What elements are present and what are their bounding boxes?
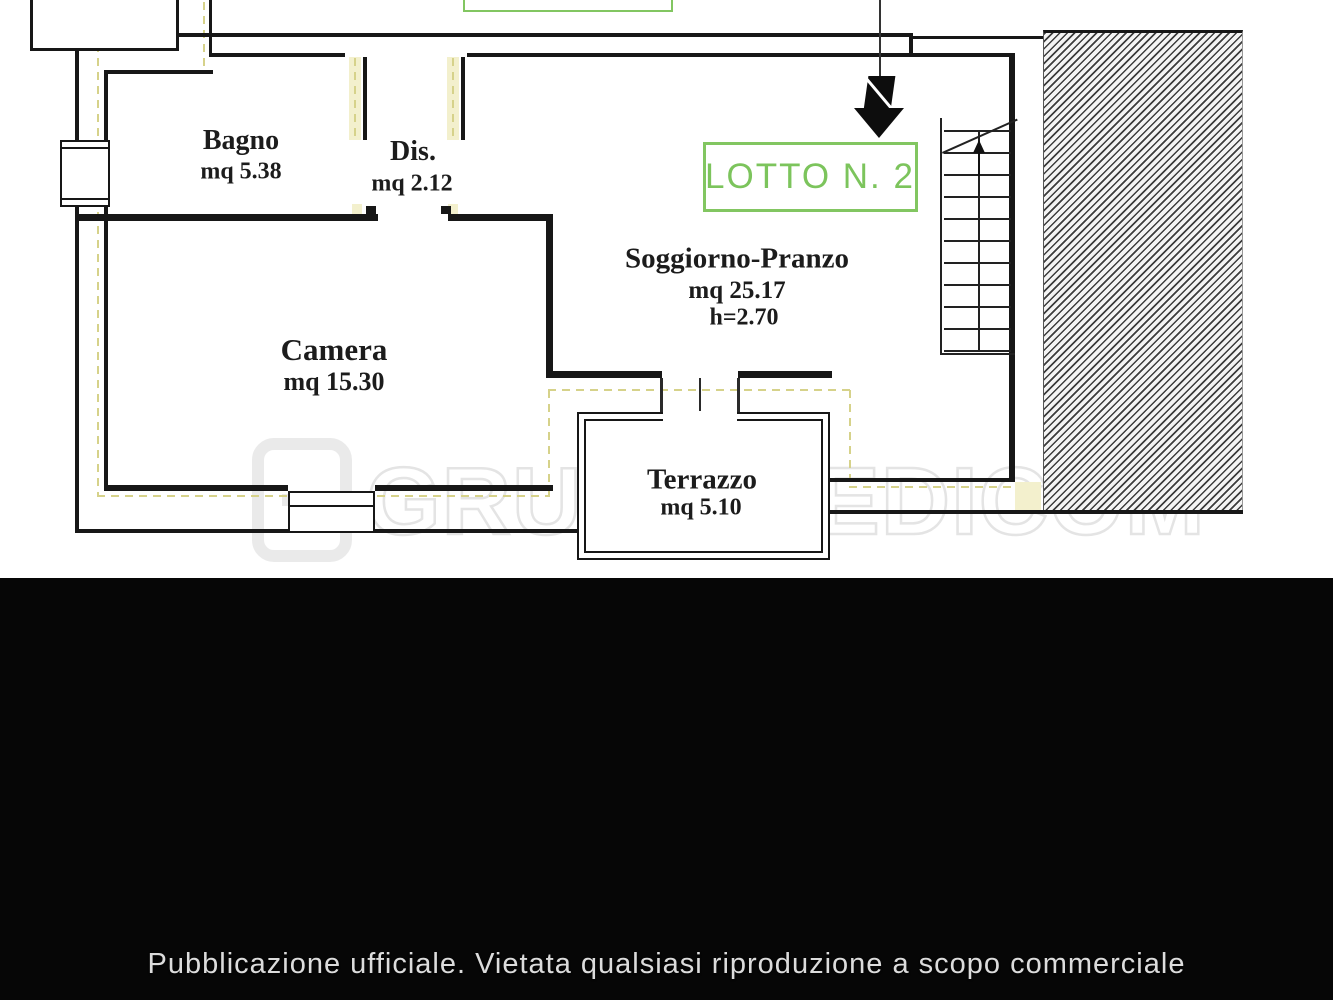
footer-disclaimer: Pubblicazione ufficiale. Vietata qualsia… [0,948,1333,981]
wall-segment [363,57,367,140]
door-jamb-pad [352,204,362,214]
wall-segment [375,485,553,491]
insulation-line [849,486,1012,488]
stair-direction-arrow [978,150,980,176]
wall-segment [209,53,345,57]
wall-segment [209,0,212,57]
room-name-camera: Camera [281,332,388,368]
wall-segment [75,48,79,533]
room-area-soggiorno: mq 25.17 [688,277,785,305]
terrace-door-line [699,378,701,414]
insulated-wall-patch [1015,482,1041,510]
wall-segment [913,36,1043,39]
wall-segment [738,371,832,378]
insulation-line [354,58,356,139]
wall-segment [830,478,1015,482]
room-name-bagno: Bagno [203,125,279,157]
wall-segment [177,33,913,37]
window-bottom [288,491,375,533]
floorplan-canvas: GRUPPO EDICOM [0,0,1333,578]
staircase [940,118,1015,355]
room-name-terrazzo: Terrazzo [647,464,757,497]
door-jamb [737,378,740,414]
lot-number-label: LOTTO N. 2 [705,157,915,197]
wall-segment [104,485,288,491]
door-jamb [366,206,376,214]
terrace-door-opening [663,411,737,423]
insulation-line [452,58,454,139]
wall-segment [546,214,553,378]
room-name-dis: Dis. [390,136,436,168]
window-left [60,140,110,207]
door-jamb [660,378,663,414]
wall-segment [546,371,662,378]
pillar-box [30,0,179,51]
room-height-soggiorno: h=2.70 [709,305,778,332]
room-area-dis: mq 2.12 [371,171,452,198]
room-name-soggiorno: Soggiorno-Pranzo [625,243,849,276]
wall-segment [467,53,1013,57]
room-area-bagno: mq 5.38 [200,159,281,186]
wall-segment [104,74,108,491]
wall-segment [75,214,378,221]
room-area-camera: mq 15.30 [283,367,384,397]
insulation-line [849,390,851,488]
floorplan-page: GRUPPO EDICOM [0,0,1333,1000]
insulation-line [548,390,550,497]
stair-arrow-head-icon [973,140,985,153]
wall-segment [448,214,553,221]
wall-segment [104,70,213,74]
pointer-stem-line [879,0,881,78]
door-jamb [441,206,451,214]
hatched-adjacent-building [1043,30,1243,514]
wall-segment [461,57,465,140]
down-arrow-icon [854,108,904,138]
insulation-line [97,2,99,497]
wall-segment [830,510,1243,514]
room-area-terrazzo: mq 5.10 [660,495,741,522]
lot-box-partial [463,0,673,12]
